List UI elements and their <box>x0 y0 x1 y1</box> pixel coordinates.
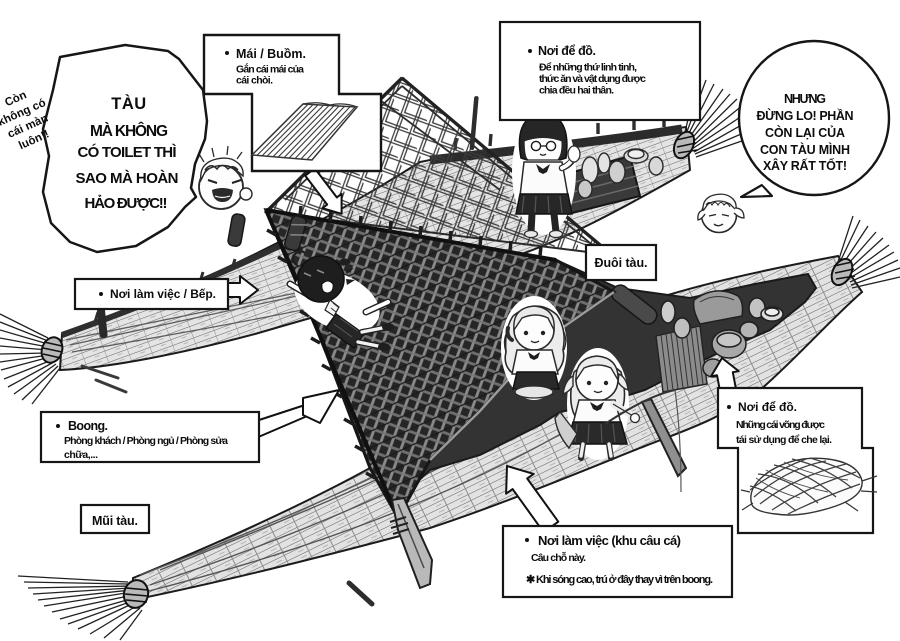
svg-text:Đuôi tàu.: Đuôi tàu. <box>595 256 648 270</box>
svg-text:Nơi làm việc / Bếp.: Nơi làm việc / Bếp. <box>110 287 216 301</box>
svg-text:Để những thứ linh tinh,: Để những thứ linh tinh, <box>539 62 637 74</box>
svg-text:thức ăn và vật dụng được: thức ăn và vật dụng được <box>539 73 646 85</box>
svg-text:Nơi làm việc (khu câu cá): Nơi làm việc (khu câu cá) <box>538 533 681 548</box>
svg-text:Phòng khách / Phòng ngủ / Phòn: Phòng khách / Phòng ngủ / Phòng sửa <box>64 435 228 447</box>
svg-text:Nơi để đồ.: Nơi để đồ. <box>538 44 596 58</box>
svg-text:CÓ TOILET THÌ: CÓ TOILET THÌ <box>78 143 177 161</box>
svg-text:cái chòi.: cái chòi. <box>236 75 273 87</box>
svg-text:HẢO ĐƯỢC!!: HẢO ĐƯỢC!! <box>85 195 168 212</box>
svg-text:✱ Khi sóng cao, trú ở đây thay: ✱ Khi sóng cao, trú ở đây thay vì trên b… <box>526 574 713 586</box>
svg-text:CON TÀU MÌNH: CON TÀU MÌNH <box>760 142 850 157</box>
svg-text:chữa,...: chữa,... <box>64 449 98 461</box>
svg-text:NHƯNG: NHƯNG <box>784 92 826 106</box>
svg-text:Mái / Buồm.: Mái / Buồm. <box>236 47 306 61</box>
svg-text:SAO MÀ HOÀN: SAO MÀ HOÀN <box>76 170 179 187</box>
svg-text:ĐỪNG LO! PHẦN: ĐỪNG LO! PHẦN <box>757 108 854 123</box>
svg-text:TÀU: TÀU <box>111 94 146 113</box>
svg-text:Những cái võng được: Những cái võng được <box>736 419 825 431</box>
svg-text:Câu chỗ này.: Câu chỗ này. <box>531 551 586 564</box>
svg-text:Nơi để đồ.: Nơi để đồ. <box>738 400 797 414</box>
svg-text:CÒN LẠI CỦA: CÒN LẠI CỦA <box>765 125 845 140</box>
svg-text:chia đều hai thân.: chia đều hai thân. <box>539 85 614 97</box>
svg-text:MÀ KHÔNG: MÀ KHÔNG <box>90 122 168 140</box>
svg-text:Boong.: Boong. <box>68 419 108 433</box>
svg-text:XÂY RẤT TỐT!: XÂY RẤT TỐT! <box>763 158 847 173</box>
svg-text:tái sử dụng để che lại.: tái sử dụng để che lại. <box>736 434 832 446</box>
svg-text:Mũi tàu.: Mũi tàu. <box>92 514 138 528</box>
